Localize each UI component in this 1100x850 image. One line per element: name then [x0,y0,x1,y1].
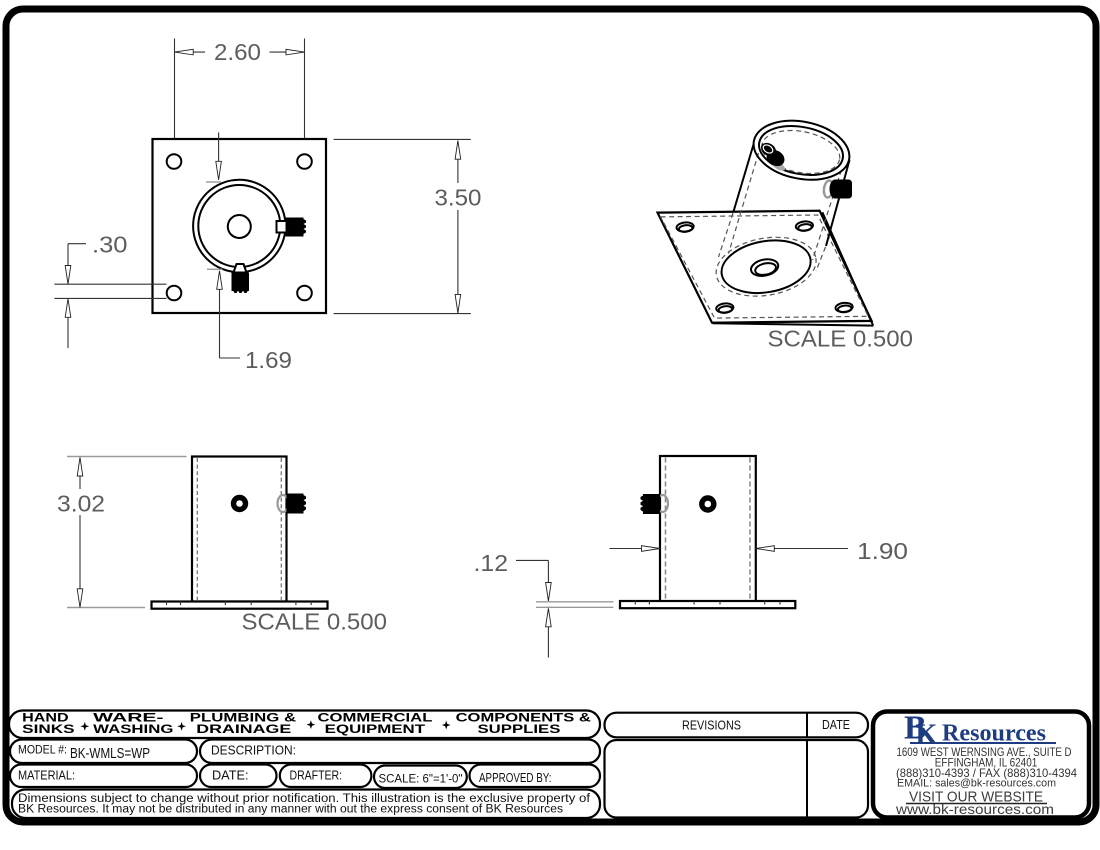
svg-text:MATERIAL:: MATERIAL: [18,768,75,783]
svg-text:.30: .30 [92,232,128,258]
svg-text:www.bk-resources.com: www.bk-resources.com [895,801,1054,817]
svg-text:EMAIL: sales@bk-resources.com: EMAIL: sales@bk-resources.com [897,778,1056,790]
svg-text:DESCRIPTION:: DESCRIPTION: [211,743,296,758]
svg-text:PLUMBING &: PLUMBING & [190,713,296,725]
svg-text:DRAINAGE: DRAINAGE [196,724,291,736]
svg-text:COMMERCIAL: COMMERCIAL [318,713,433,725]
svg-text:APPROVED BY:: APPROVED BY: [479,771,552,785]
svg-text:SCALE 0.500: SCALE 0.500 [768,326,914,352]
svg-text:EQUIPMENT: EQUIPMENT [325,724,425,736]
svg-text:3.02: 3.02 [57,491,105,517]
svg-text:WARE-: WARE- [93,713,164,725]
svg-text:SINKS: SINKS [22,724,75,736]
svg-text:HAND: HAND [22,713,68,725]
svg-text:SCALE: 6"=1'-0": SCALE: 6"=1'-0" [379,774,463,786]
svg-text:BK Resources. It may not be di: BK Resources. It may not be distributed … [18,804,563,816]
svg-text:SCALE 0.500: SCALE 0.500 [242,609,388,635]
svg-text:2.60: 2.60 [214,39,261,65]
svg-text:1.69: 1.69 [245,347,292,373]
svg-text:COMPONENTS &: COMPONENTS & [456,713,591,725]
svg-text:REVISIONS: REVISIONS [682,719,741,733]
svg-text:WASHING: WASHING [93,724,173,736]
svg-text:SUPPLIES: SUPPLIES [478,724,561,736]
svg-text:DRAFTER:: DRAFTER: [290,768,343,783]
svg-text:DATE:: DATE: [212,768,249,783]
svg-text:1.90: 1.90 [857,538,908,564]
svg-text:3.50: 3.50 [435,185,482,211]
svg-text:BK-WMLS=WP: BK-WMLS=WP [70,746,150,762]
svg-text:.12: .12 [474,550,509,576]
svg-text:DATE: DATE [822,718,850,732]
svg-text:MODEL #:: MODEL #: [18,743,67,757]
